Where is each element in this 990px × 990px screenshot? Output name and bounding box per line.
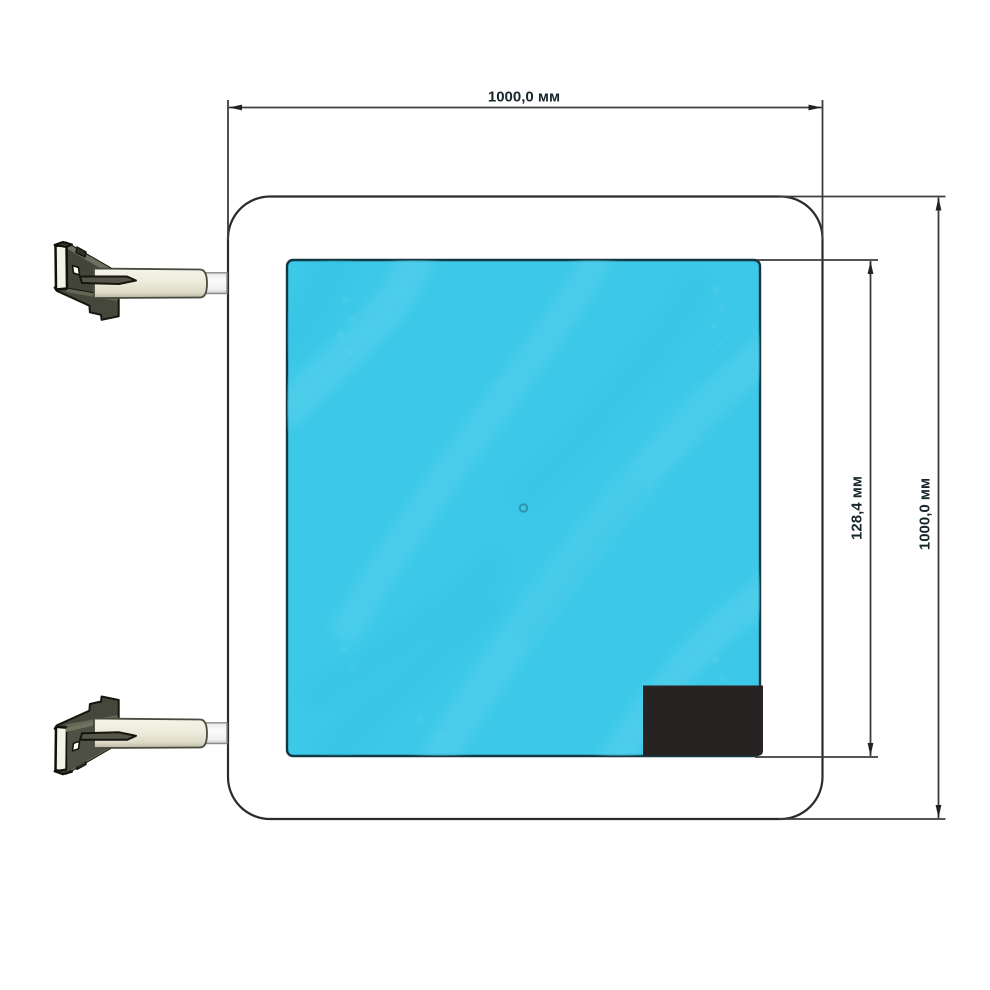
svg-text:1000,0 мм: 1000,0 мм: [917, 478, 934, 550]
svg-text:128,4 мм: 128,4 мм: [849, 476, 866, 540]
svg-text:1000,0 мм: 1000,0 мм: [488, 89, 560, 106]
